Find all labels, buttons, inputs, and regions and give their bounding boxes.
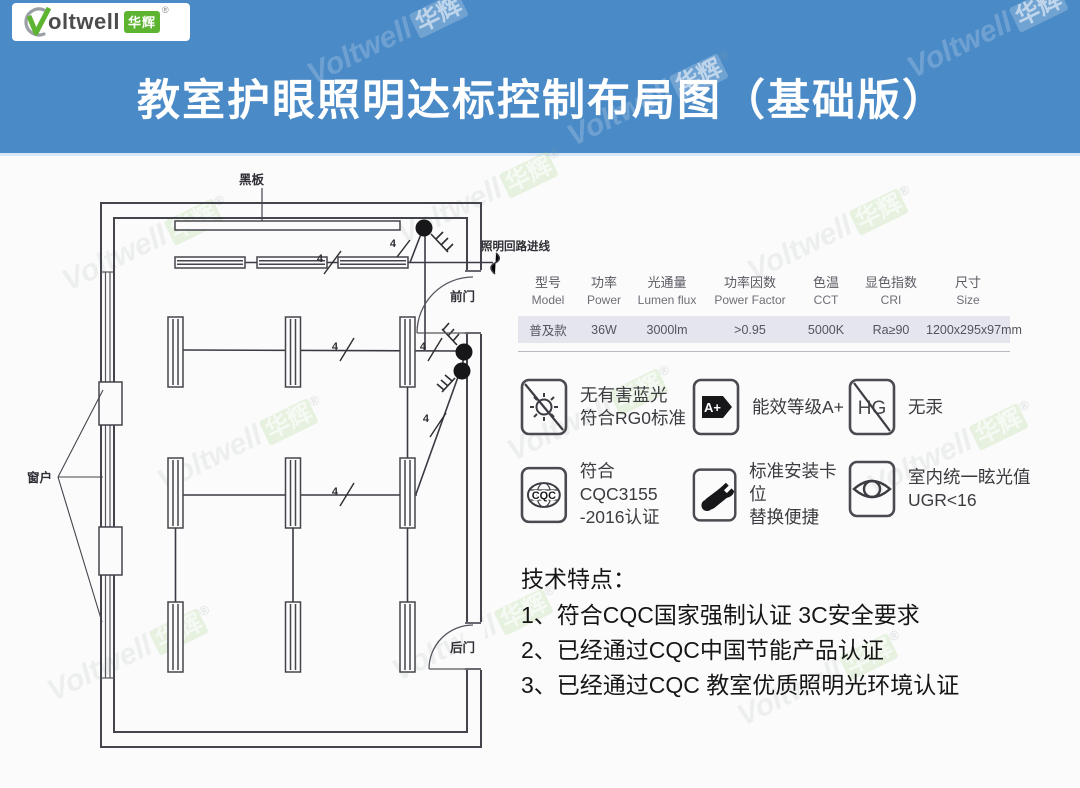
blackboard [175, 188, 400, 230]
window-symbols [101, 272, 114, 678]
spec-table: 型号Model 功率Power 光通量Lumen flux 功率因数Power … [518, 272, 1010, 352]
feature-easy-install: 标准安装卡位替换便捷 [692, 460, 848, 529]
table-rule [518, 351, 1010, 352]
feature-grid: 无有害蓝光符合RG0标准 A+ 能效等级A+ HG 无汞 [520, 378, 1060, 553]
svg-text:4: 4 [423, 413, 430, 425]
svg-text:CQC: CQC [532, 489, 556, 501]
slide: { "logo": {"brand": "oltwell", "badge": … [0, 0, 1080, 788]
spec-panel: 型号Model 功率Power 光通量Lumen flux 功率因数Power … [518, 272, 1012, 352]
back-door-label: 后门 [450, 640, 475, 655]
feature-no-blue-light: 无有害蓝光符合RG0标准 [520, 378, 692, 436]
spec-table-header: 型号Model 功率Power 光通量Lumen flux 功率因数Power … [518, 272, 1010, 307]
brand-logo: oltwell 华辉 ® [12, 3, 190, 41]
window-leaders [58, 390, 103, 622]
spec-table-row: 普及款 36W 3000lm >0.95 5000K Ra≥90 1200x29… [518, 316, 1010, 343]
feature-energy-label: A+ 能效等级A+ [692, 378, 848, 436]
incoming-line-label: 照明回路进线 [481, 239, 550, 253]
svg-text:4: 4 [317, 253, 324, 265]
svg-text:4: 4 [332, 486, 339, 498]
tech-feature-item: 3、已经通过CQC 教室优质照明光环境认证 [521, 668, 1061, 703]
wire-count-marks [324, 240, 446, 506]
feature-no-mercury: HG 无汞 [848, 378, 943, 436]
svg-text:4: 4 [332, 341, 339, 353]
logo-v-icon [18, 5, 52, 39]
tech-feature-item: 1、符合CQC国家强制认证 3C安全要求 [521, 598, 1061, 633]
eye-glare-icon [848, 460, 896, 518]
front-door-label: 前门 [450, 289, 475, 304]
tech-features-heading: 技术特点： [521, 560, 1061, 594]
feature-cqc-cert: CQC 符合CQC3155-2016认证 [520, 460, 692, 529]
blackboard-lamps [175, 257, 408, 268]
svg-text:4: 4 [390, 238, 397, 250]
no-blue-light-icon [520, 378, 568, 436]
energy-label-icon: A+ [692, 378, 740, 436]
svg-text:A+: A+ [704, 400, 721, 415]
logo-badge: 华辉 [124, 11, 160, 33]
tech-features: 技术特点： 1、符合CQC国家强制认证 3C安全要求 2、已经通过CQC中国节能… [521, 560, 1061, 703]
blackboard-label: 黑板 [239, 172, 265, 187]
feature-low-glare: 室内统一眩光值UGR<16 [848, 460, 1031, 518]
no-mercury-icon: HG [848, 378, 896, 436]
window-label: 窗户 [27, 470, 52, 485]
logo-wordmark: oltwell [48, 9, 120, 35]
cqc-cert-icon: CQC [520, 466, 568, 524]
tech-feature-item: 2、已经通过CQC中国节能产品认证 [521, 633, 1061, 668]
page-title: 教室护眼照明达标控制布局图（基础版） [137, 66, 947, 128]
easy-install-icon [692, 466, 737, 524]
svg-text:4: 4 [420, 341, 427, 353]
registered-mark: ® [162, 5, 169, 15]
floorplan-diagram: 4 4 4 4 4 4 黑板 窗户 前门 后门 照明回路进线 [0, 153, 560, 788]
